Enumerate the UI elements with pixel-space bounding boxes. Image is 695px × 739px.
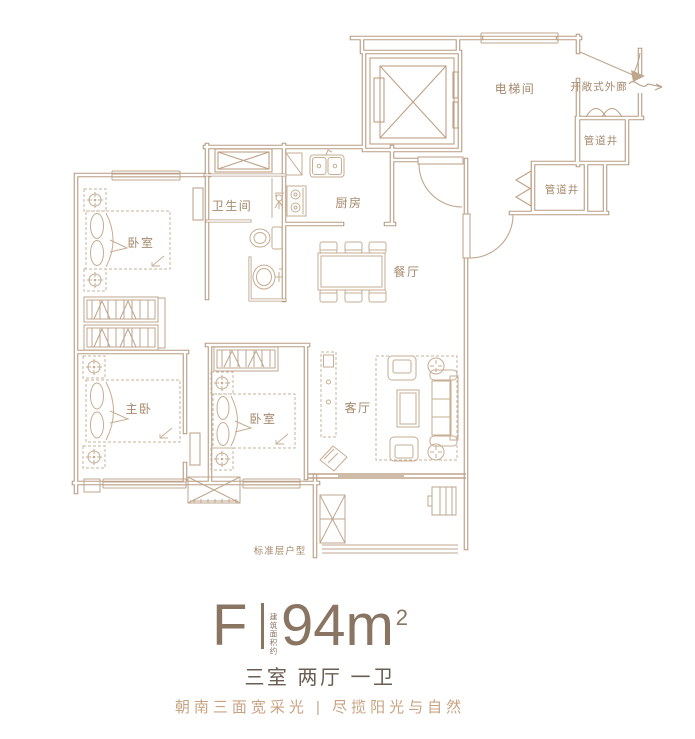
room-label-open-corridor: 开敞式外廊 bbox=[570, 80, 628, 93]
tagline: 朝南三面宽采光 | 尽揽阳光与自然 bbox=[0, 696, 640, 717]
area-superscript: 2 bbox=[396, 607, 408, 629]
blanket-icon bbox=[106, 213, 127, 267]
louver-left-icon bbox=[516, 171, 531, 206]
kitchen-sink-icon bbox=[310, 150, 344, 177]
elevator-x-icon bbox=[380, 66, 446, 138]
room-label-bedroom-bottom: 卧室 bbox=[249, 411, 276, 426]
window-elevator-hall bbox=[481, 33, 558, 43]
pillow-icon bbox=[91, 241, 104, 266]
pillow-icon bbox=[91, 412, 104, 438]
balcony-items bbox=[320, 487, 456, 543]
kitchen-corner-unit bbox=[286, 153, 302, 175]
door-corridor bbox=[580, 52, 645, 82]
room-label-elevator-hall: 电梯间 bbox=[495, 82, 536, 96]
dining-table-icon bbox=[318, 253, 385, 290]
wardrobe-hall bbox=[84, 297, 165, 350]
room-label-master: 主卧 bbox=[125, 402, 152, 416]
toilet-icon bbox=[250, 227, 282, 249]
door-leaf-bedroom-top bbox=[193, 188, 203, 220]
room-label-bathroom: 卫生间 bbox=[212, 199, 253, 213]
flue-x-icon bbox=[218, 152, 269, 169]
balcony-sliding-door bbox=[308, 474, 466, 478]
room-label-bedroom-top: 卧室 bbox=[127, 235, 154, 250]
area-value: 94m bbox=[281, 596, 394, 655]
sofa-icon bbox=[430, 370, 458, 446]
bathroom-fixtures bbox=[250, 178, 284, 289]
bedroom-bottom-furniture bbox=[211, 347, 295, 470]
balcony-cabinet-icon bbox=[428, 487, 456, 515]
pillow-icon bbox=[91, 214, 104, 239]
room-label-pipe-shaft-lower: 管道井 bbox=[545, 183, 580, 196]
elevator-shaft bbox=[370, 58, 458, 144]
balcony-railing bbox=[322, 545, 458, 553]
wardrobe-icon bbox=[214, 347, 278, 371]
pillow-icon bbox=[91, 383, 104, 409]
armchair-icon bbox=[388, 356, 418, 461]
flue-shaft bbox=[215, 149, 272, 172]
living-furniture bbox=[320, 352, 458, 471]
layout-text: 三室 两厅 一卫 bbox=[0, 661, 640, 690]
blanket-icon bbox=[231, 396, 251, 446]
stove-icon bbox=[287, 186, 306, 216]
cabinet-icon bbox=[321, 352, 336, 437]
room-label-dining: 餐厅 bbox=[393, 264, 420, 279]
pillow-icon bbox=[217, 397, 229, 420]
unit-title-row: F 建筑面积约 94m 2 bbox=[212, 596, 408, 656]
dining-chairs-icon bbox=[320, 242, 386, 302]
room-label-pipe-shaft-upper: 管道井 bbox=[584, 134, 619, 147]
door-leaf-master bbox=[190, 433, 200, 465]
room-label-living: 客厅 bbox=[344, 400, 371, 415]
plan-caption: 标准层户型 bbox=[254, 545, 307, 557]
door-lobby bbox=[418, 157, 463, 207]
unit-code: F bbox=[212, 596, 247, 655]
door-entry bbox=[463, 214, 513, 258]
title-divider bbox=[261, 603, 264, 649]
dining-set bbox=[318, 242, 386, 302]
corner-tv-icon bbox=[320, 446, 347, 471]
room-label-kitchen: 厨房 bbox=[335, 195, 362, 210]
area-prefix: 建筑面积约 bbox=[268, 613, 279, 656]
pillow-icon bbox=[217, 423, 229, 446]
washbasin-icon bbox=[253, 265, 283, 289]
floor-plan: 卧室 卫生间 厨房 餐厅 电梯间 开敞式外廊 管道井 管道井 主卧 卧室 客厅 … bbox=[0, 0, 695, 570]
ac-unit-icon bbox=[320, 495, 345, 543]
